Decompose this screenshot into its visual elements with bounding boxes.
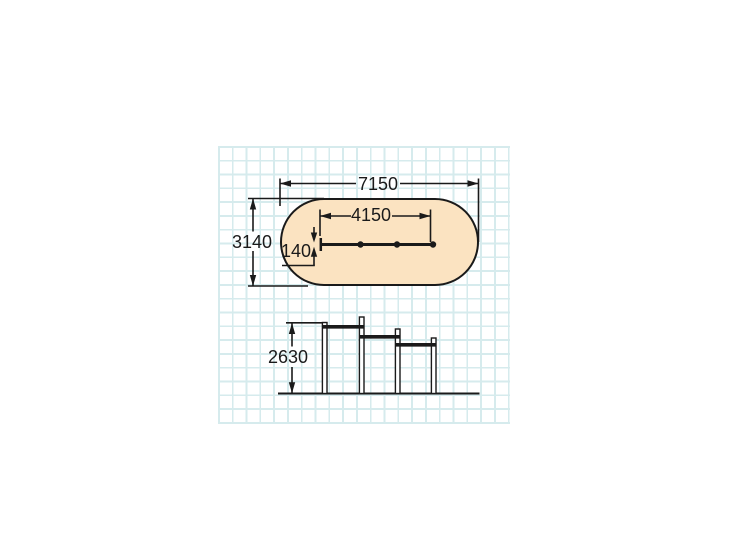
arrowhead-down bbox=[311, 233, 317, 243]
drawing-overlay bbox=[0, 0, 744, 558]
overall-width-label: 3140 bbox=[232, 233, 272, 251]
arrowhead-up bbox=[311, 247, 317, 257]
post-1 bbox=[322, 323, 327, 394]
arrowhead-right bbox=[420, 213, 431, 219]
arrowhead-down bbox=[250, 275, 256, 286]
arrowhead-left bbox=[280, 180, 291, 186]
post-marker-dot bbox=[430, 241, 436, 247]
arrowhead-down bbox=[289, 382, 295, 393]
bar-span-label: 4150 bbox=[351, 206, 391, 224]
drawing-canvas: 7150 4150 3140 140 2630 bbox=[0, 0, 744, 558]
post-3 bbox=[395, 329, 400, 394]
arrowhead-up bbox=[289, 323, 295, 334]
height-label: 2630 bbox=[268, 348, 308, 366]
arrowhead-right bbox=[468, 180, 479, 186]
post-marker-dot bbox=[357, 241, 363, 247]
elevation-view bbox=[278, 317, 480, 394]
overall-length-label: 7150 bbox=[358, 175, 398, 193]
arrowhead-left bbox=[320, 213, 331, 219]
plan-beam bbox=[320, 238, 436, 251]
post-marker-dot bbox=[394, 241, 400, 247]
beam-width-label: 140 bbox=[281, 242, 311, 260]
arrowhead-up bbox=[250, 199, 256, 210]
